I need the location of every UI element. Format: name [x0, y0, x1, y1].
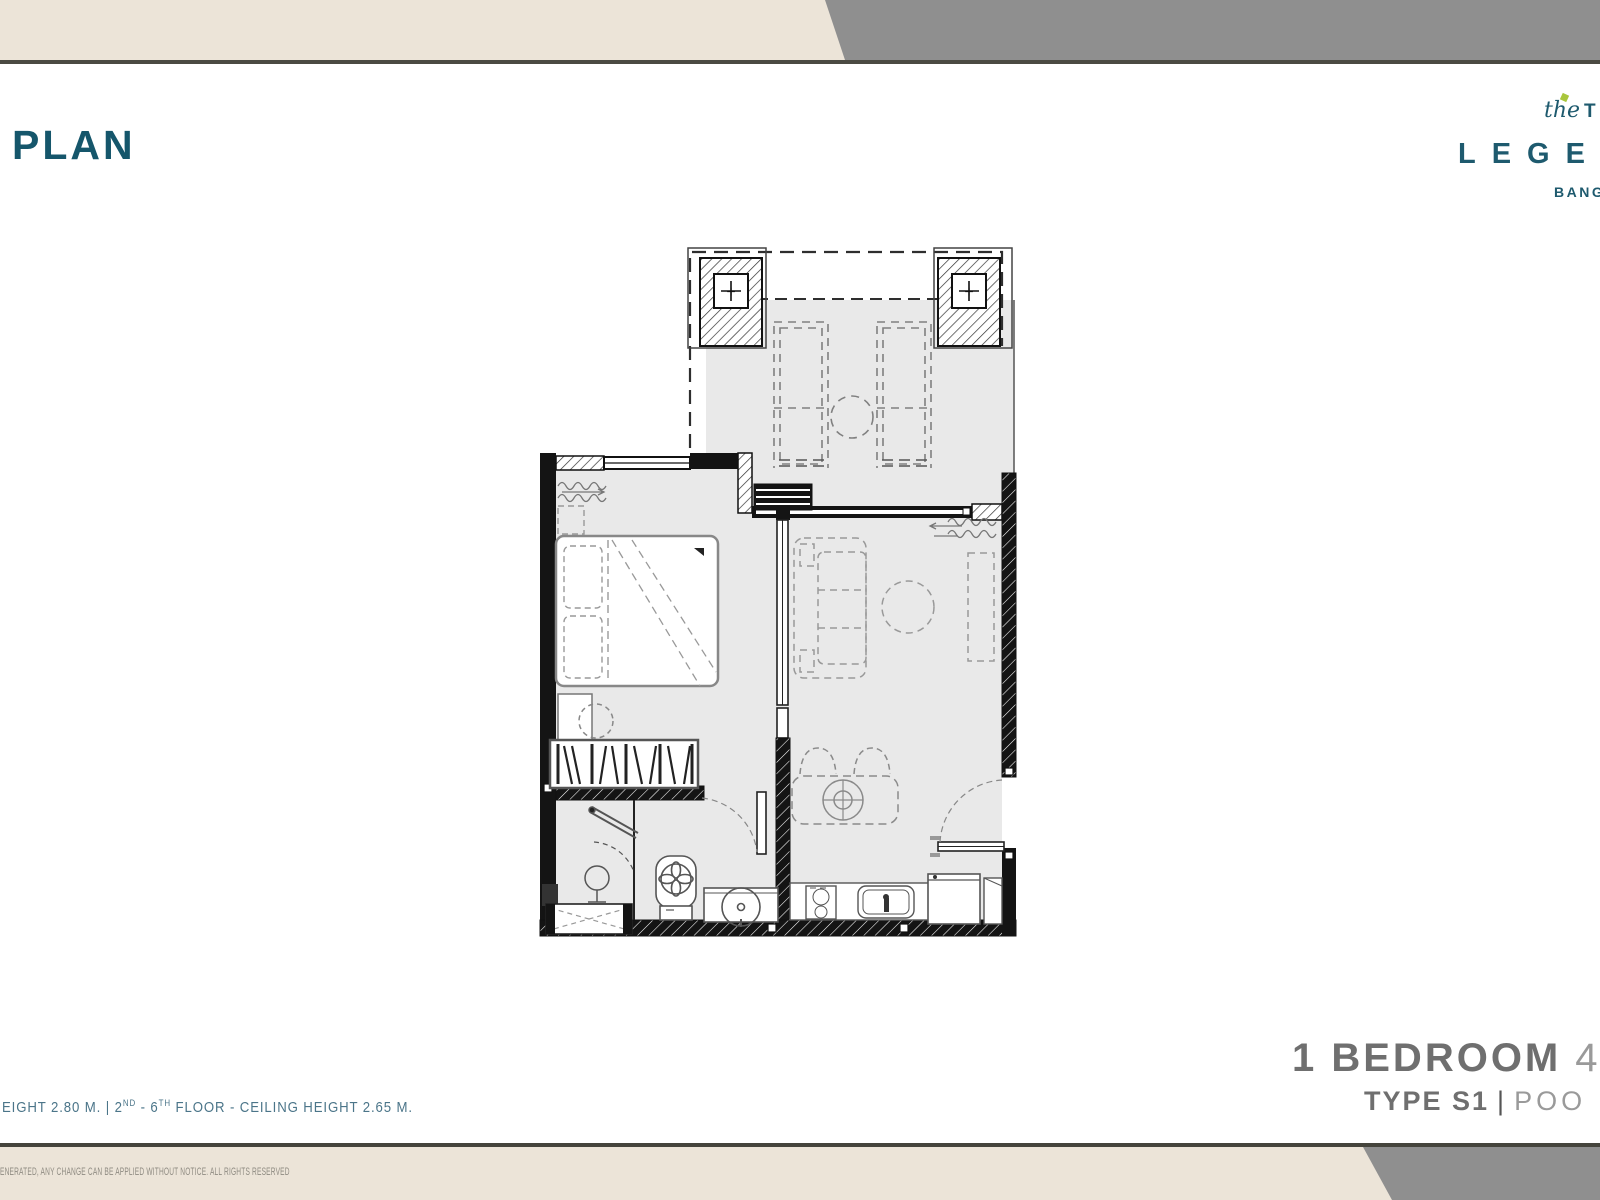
stove — [806, 886, 836, 919]
tv-console — [754, 484, 812, 510]
page-title: PLAN — [12, 122, 136, 169]
wardrobe-rack — [550, 740, 698, 788]
note-part2: - 6 — [136, 1099, 159, 1116]
tall-cabinet — [984, 878, 1002, 924]
ac-ledge — [546, 904, 632, 934]
bed — [556, 536, 718, 686]
basin — [704, 888, 778, 927]
floor-plan: + + — [520, 240, 1030, 950]
shower-shelf — [542, 884, 558, 906]
refrigerator — [928, 874, 980, 924]
ceiling-height-note: EIGHT 2.80 M. | 2ND - 6TH FLOOR - CEILIN… — [2, 1098, 413, 1116]
brand-logo-line1: theTI — [1544, 98, 1600, 123]
toilet — [656, 856, 696, 920]
brochure-page: { "header": { "title": "PLAN", "beige": … — [0, 0, 1600, 1200]
brand-logo-script: the — [1544, 98, 1580, 123]
sliding-partition — [776, 508, 790, 738]
note-part1: EIGHT 2.80 M. | 2 — [2, 1099, 123, 1116]
note-part3: FLOOR - CEILING HEIGHT 2.65 M. — [171, 1099, 413, 1116]
legal-disclaimer: ENERATED, ANY CHANGE CAN BE APPLIED WITH… — [0, 1166, 290, 1178]
column-plus-left: + — [726, 284, 735, 301]
unit-bedrooms-label: 1 BEDROOM — [1292, 1036, 1561, 1080]
unit-type-label: TYPE S1 — [1364, 1086, 1489, 1116]
brand-logo-caps: TI — [1584, 101, 1600, 122]
unit-type-line2: TYPE S1|POO — [1364, 1086, 1586, 1117]
column-plus-right: + — [964, 284, 973, 301]
note-sup1: ND — [123, 1098, 136, 1108]
kitchen-sink — [858, 886, 914, 918]
unit-type-line1: 1 BEDROOM4 — [1292, 1036, 1600, 1081]
header-rule — [0, 60, 1600, 64]
floor-plan-svg: + + — [520, 240, 1030, 950]
brand-logo-line2: LEGEN — [1458, 138, 1600, 171]
note-sup2: TH — [159, 1098, 171, 1108]
unit-view-label: POO — [1514, 1086, 1586, 1116]
brand-logo-line3: BANG — [1554, 184, 1600, 200]
unit-area-value: 4 — [1575, 1036, 1600, 1080]
unit-type-separator: | — [1489, 1086, 1514, 1116]
